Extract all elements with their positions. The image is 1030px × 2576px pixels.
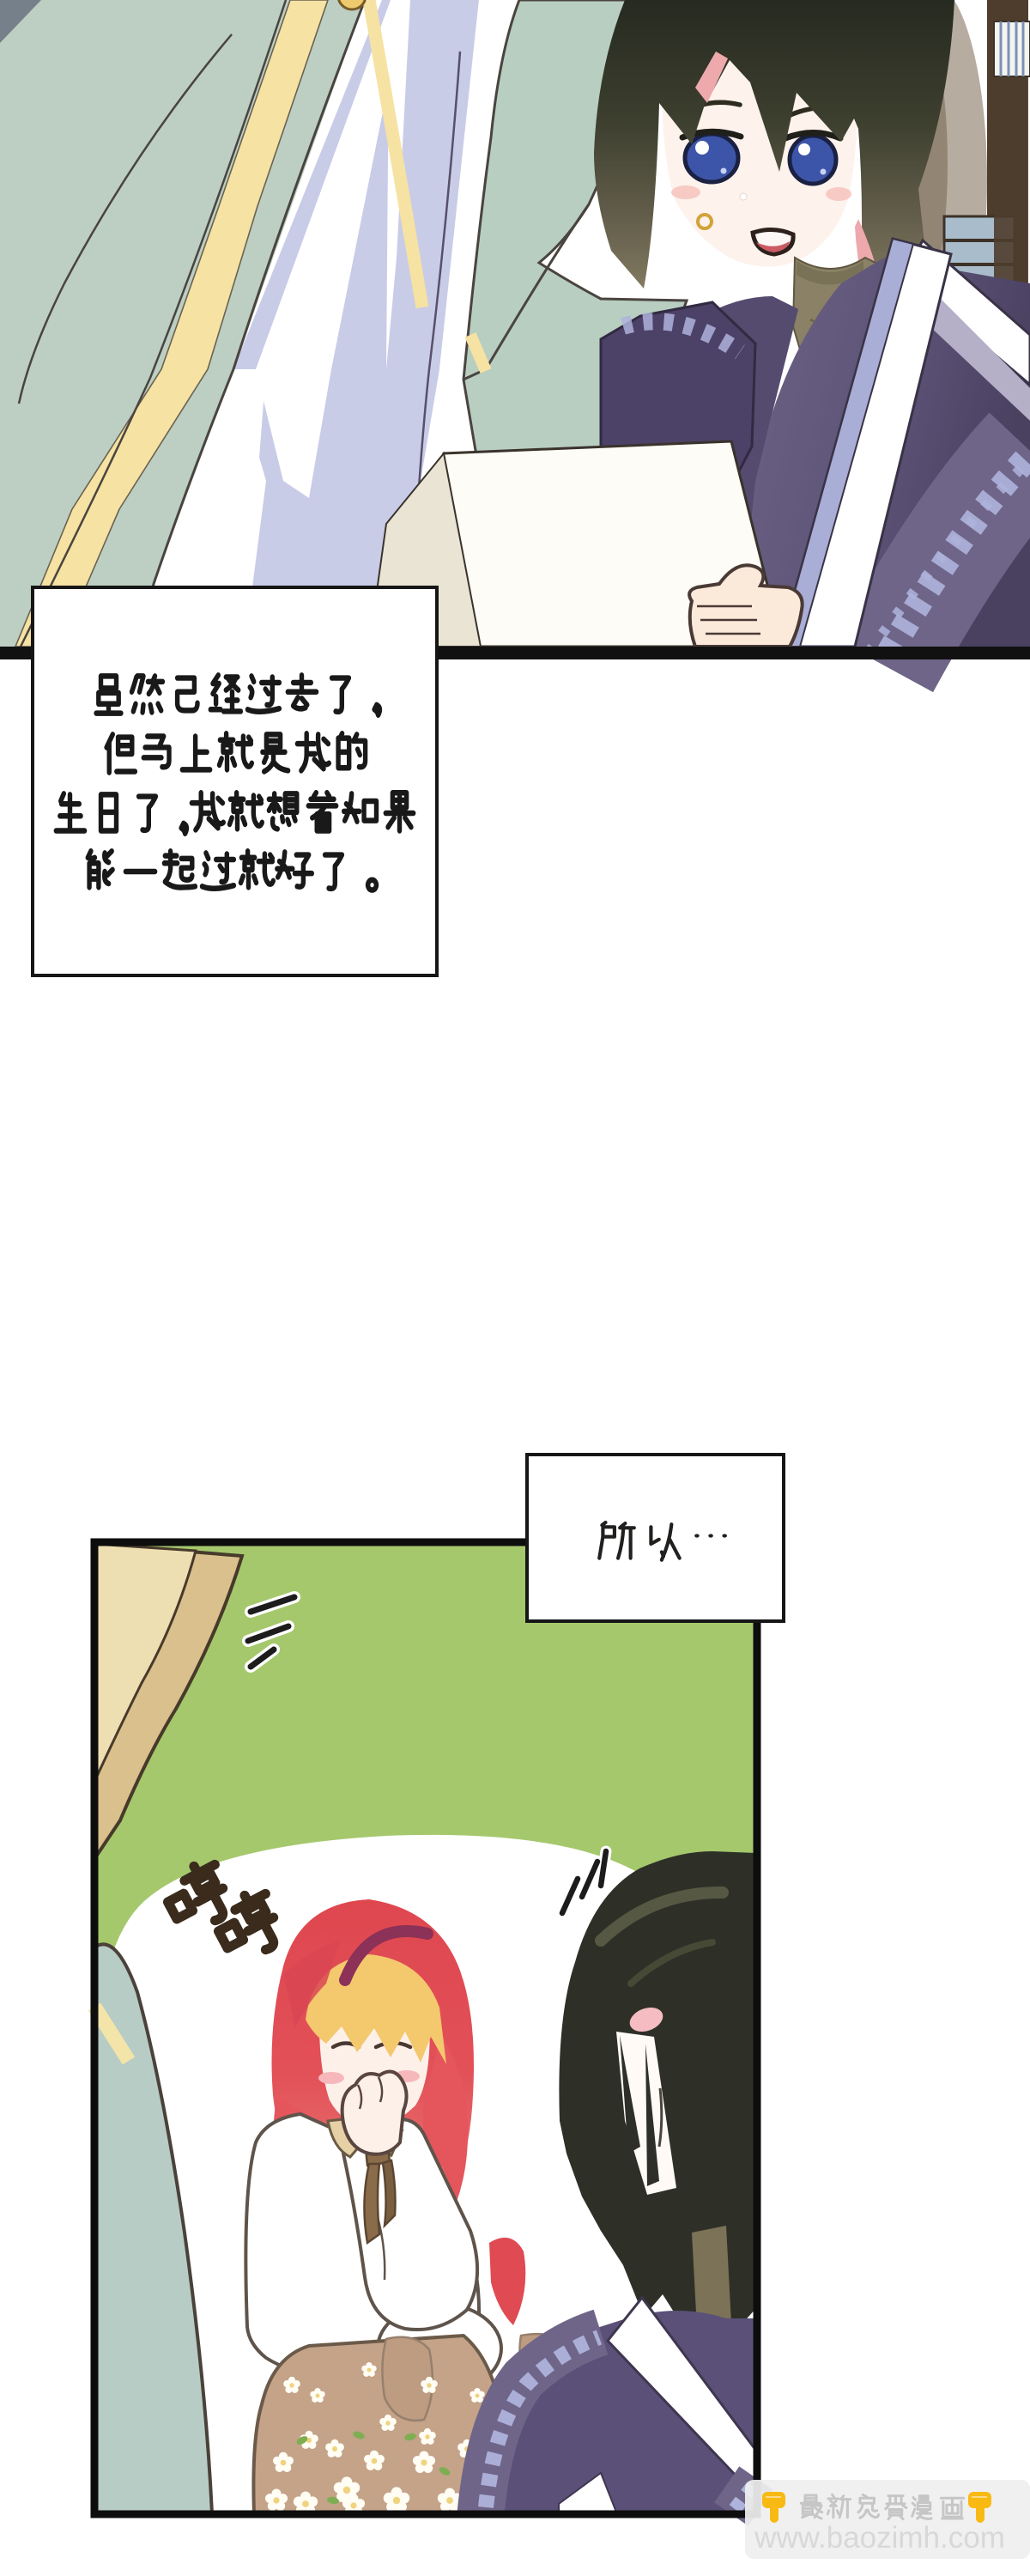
svg-text:www.baozimh.com: www.baozimh.com [754,2521,1005,2555]
